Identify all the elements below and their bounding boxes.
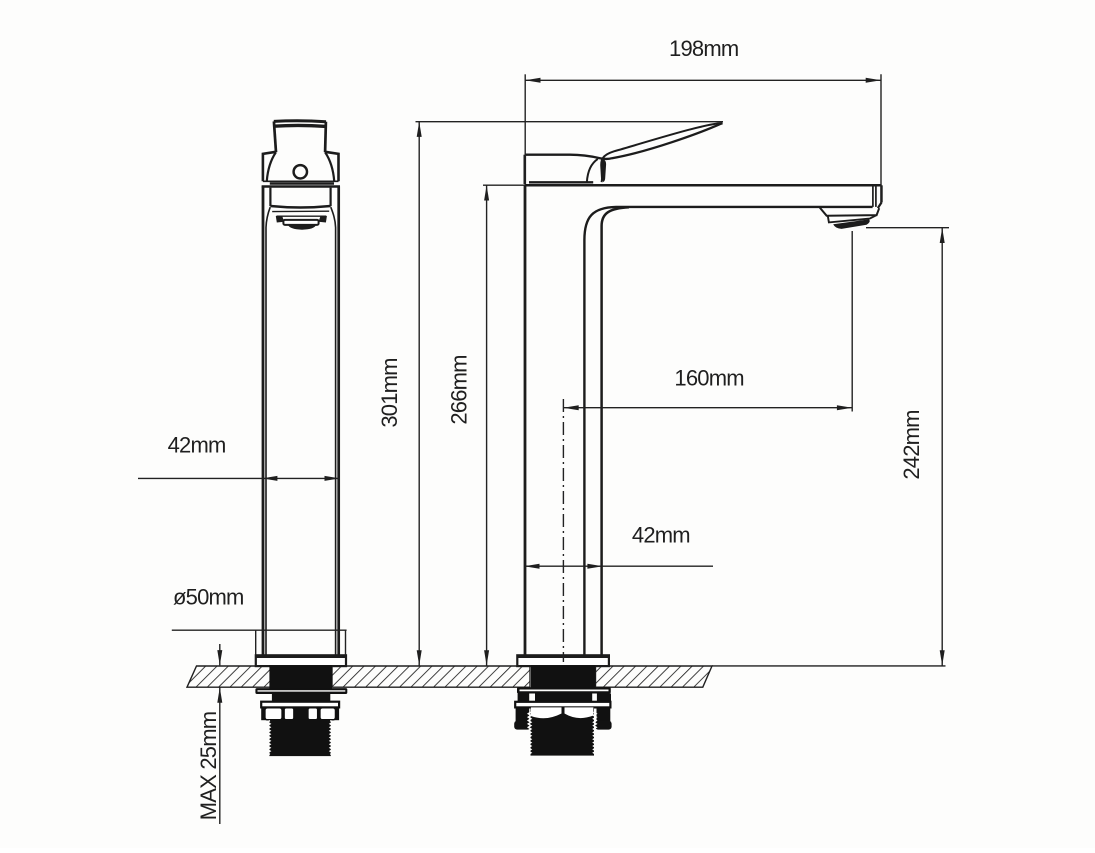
svg-text:160mm: 160mm: [674, 366, 743, 391]
svg-text:198mm: 198mm: [669, 36, 738, 61]
svg-text:42mm: 42mm: [632, 523, 690, 548]
svg-text:266mm: 266mm: [447, 355, 472, 424]
svg-text:301mm: 301mm: [377, 358, 402, 427]
svg-text:ø50mm: ø50mm: [173, 585, 244, 610]
svg-text:MAX 25mm: MAX 25mm: [196, 712, 221, 821]
svg-text:242mm: 242mm: [899, 410, 924, 479]
svg-text:42mm: 42mm: [168, 433, 226, 458]
